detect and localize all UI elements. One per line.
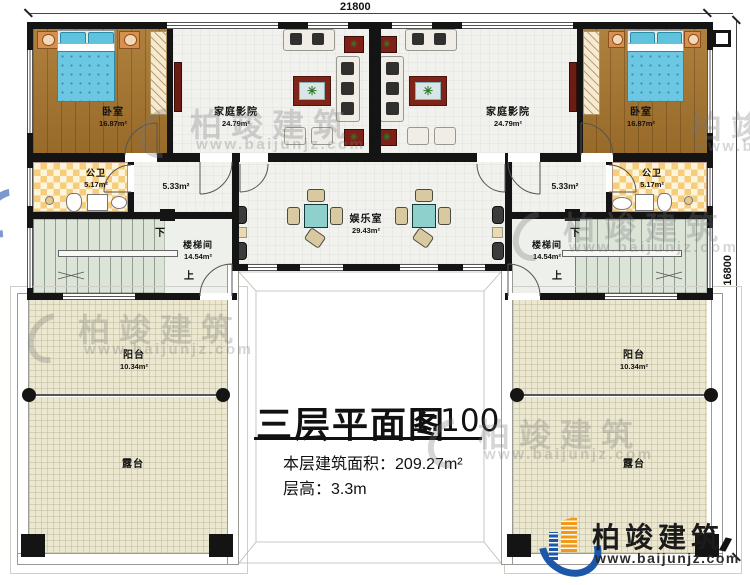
title-underline (254, 437, 482, 440)
room-label-stair-left: 楼梯间 14.54m² (183, 238, 213, 261)
floor-plan: ✳ ✳ ✳ ✳ ✳ ✳ (0, 0, 750, 585)
floor-height-value: 3.3m (331, 481, 367, 498)
stair-down-label-right: 下 (570, 224, 580, 239)
plan-scale: 1:100 (410, 403, 499, 439)
logo-building-orange-icon (561, 516, 577, 552)
logo-website: www.baijunjz.com (595, 550, 740, 566)
room-label-terrace-left: 露台 (122, 455, 144, 470)
stair-down-label-left: 下 (155, 224, 165, 239)
room-label-theater-right: 家庭影院 24.79m² (486, 103, 530, 128)
room-label-balcony-left: 阳台 10.34m² (120, 346, 148, 371)
stair-up-label-left: 上 (184, 267, 194, 282)
room-label-terrace-right: 露台 (623, 455, 645, 470)
room-label-theater-left: 家庭影院 24.79m² (214, 103, 258, 128)
floor-height-label: 层高： (283, 481, 331, 498)
room-label-bedroom-left: 卧室 16.87m² (99, 103, 127, 128)
room-label-bathroom-left: 公卫 5.17m² (84, 166, 108, 189)
floor-area-line: 本层建筑面积：209.27m² (283, 450, 463, 474)
room-label-bedroom-right: 卧室 16.87m² (627, 103, 655, 128)
floor-area-label: 本层建筑面积： (283, 456, 395, 473)
door-arcs-layer (0, 0, 750, 585)
floor-area-value: 209.27m² (395, 456, 463, 473)
company-logo: 柏竣建筑 www.baijunjz.com (540, 510, 748, 580)
logo-building-blue-icon (549, 532, 558, 560)
room-label-balcony-right: 阳台 10.34m² (620, 346, 648, 371)
stair-up-label-right: 上 (552, 267, 562, 282)
floor-height-line: 层高：3.3m (283, 475, 367, 499)
room-label-recreation: 娱乐室 29.43m² (350, 210, 383, 235)
room-label-stair-right: 楼梯间 14.54m² (532, 238, 562, 261)
room-label-bathroom-right: 公卫 5.17m² (640, 166, 664, 189)
room-label-hall-right: 5.33m² (552, 180, 579, 191)
room-label-hall-left: 5.33m² (163, 180, 190, 191)
